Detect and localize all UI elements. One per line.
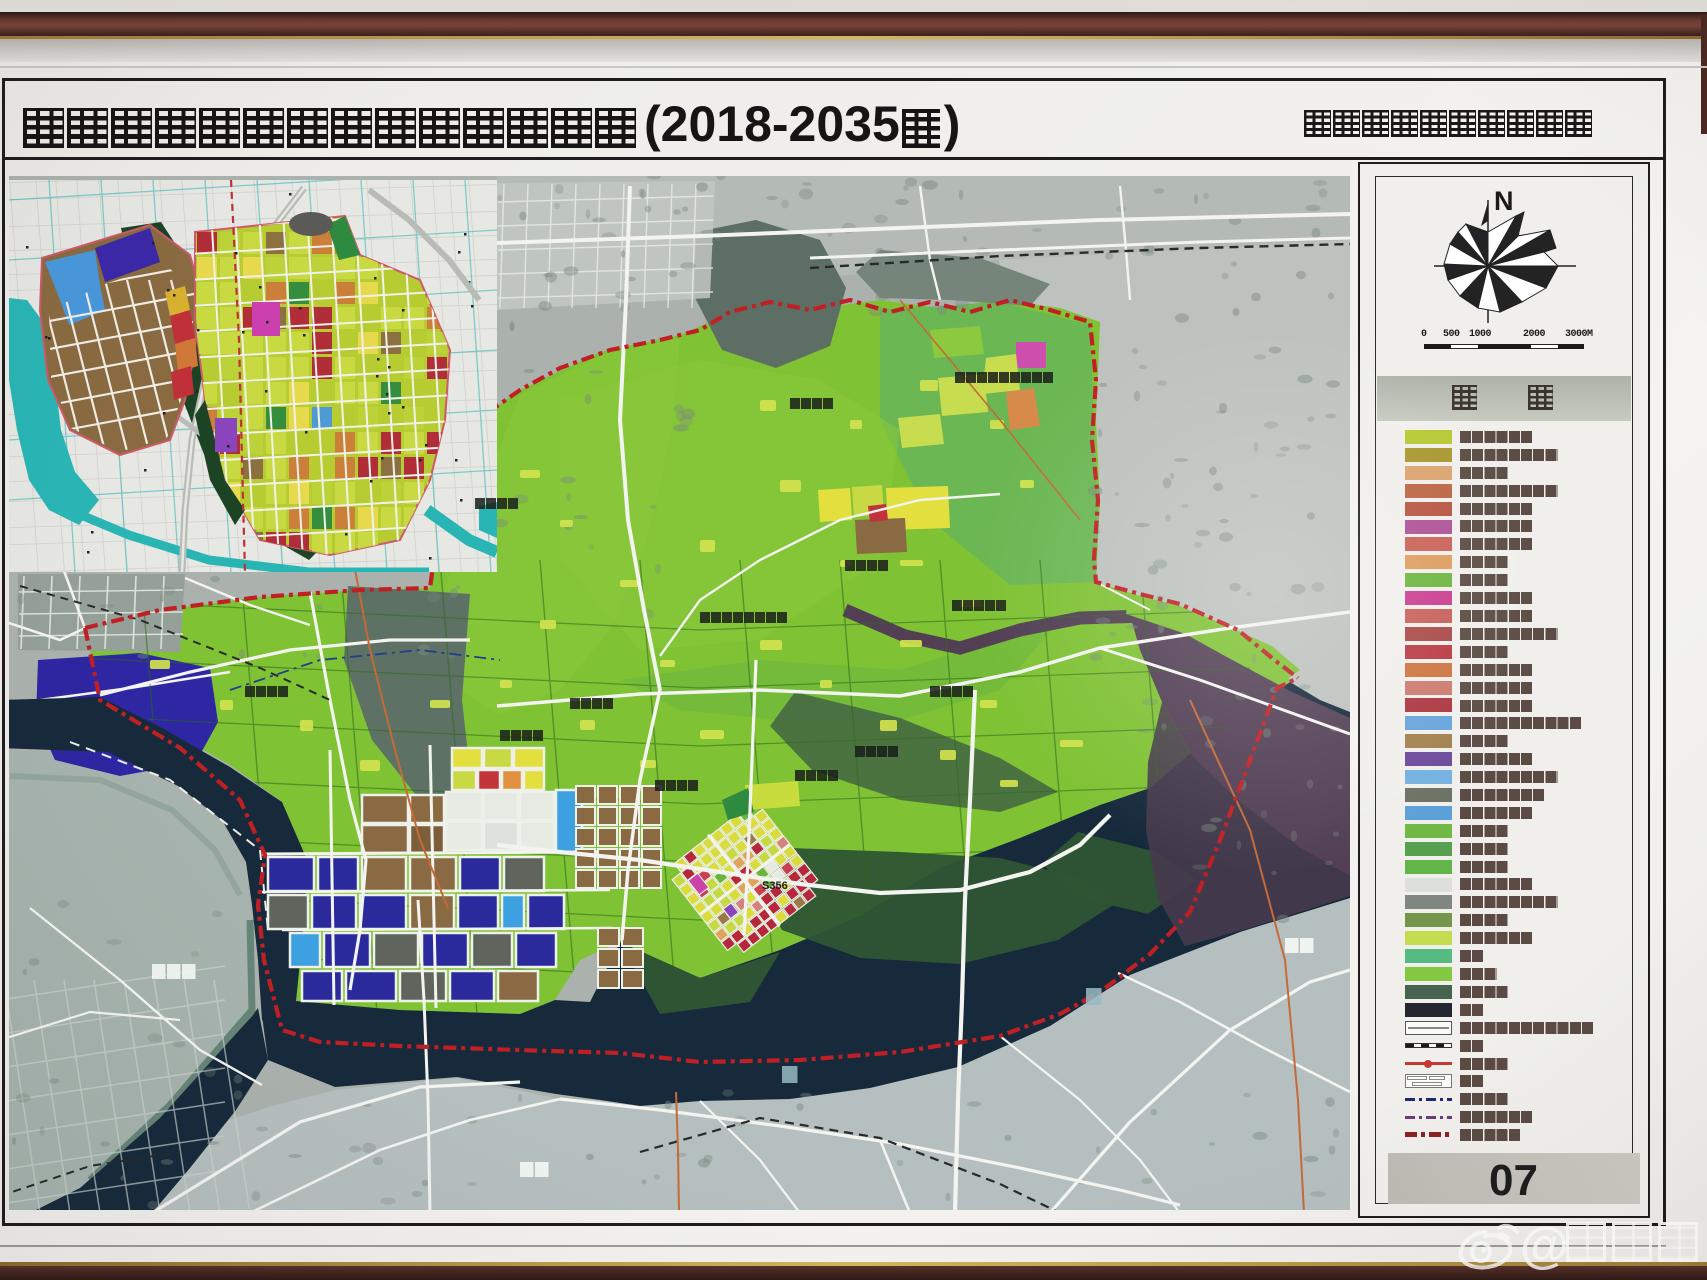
svg-text:N: N bbox=[1494, 186, 1514, 216]
